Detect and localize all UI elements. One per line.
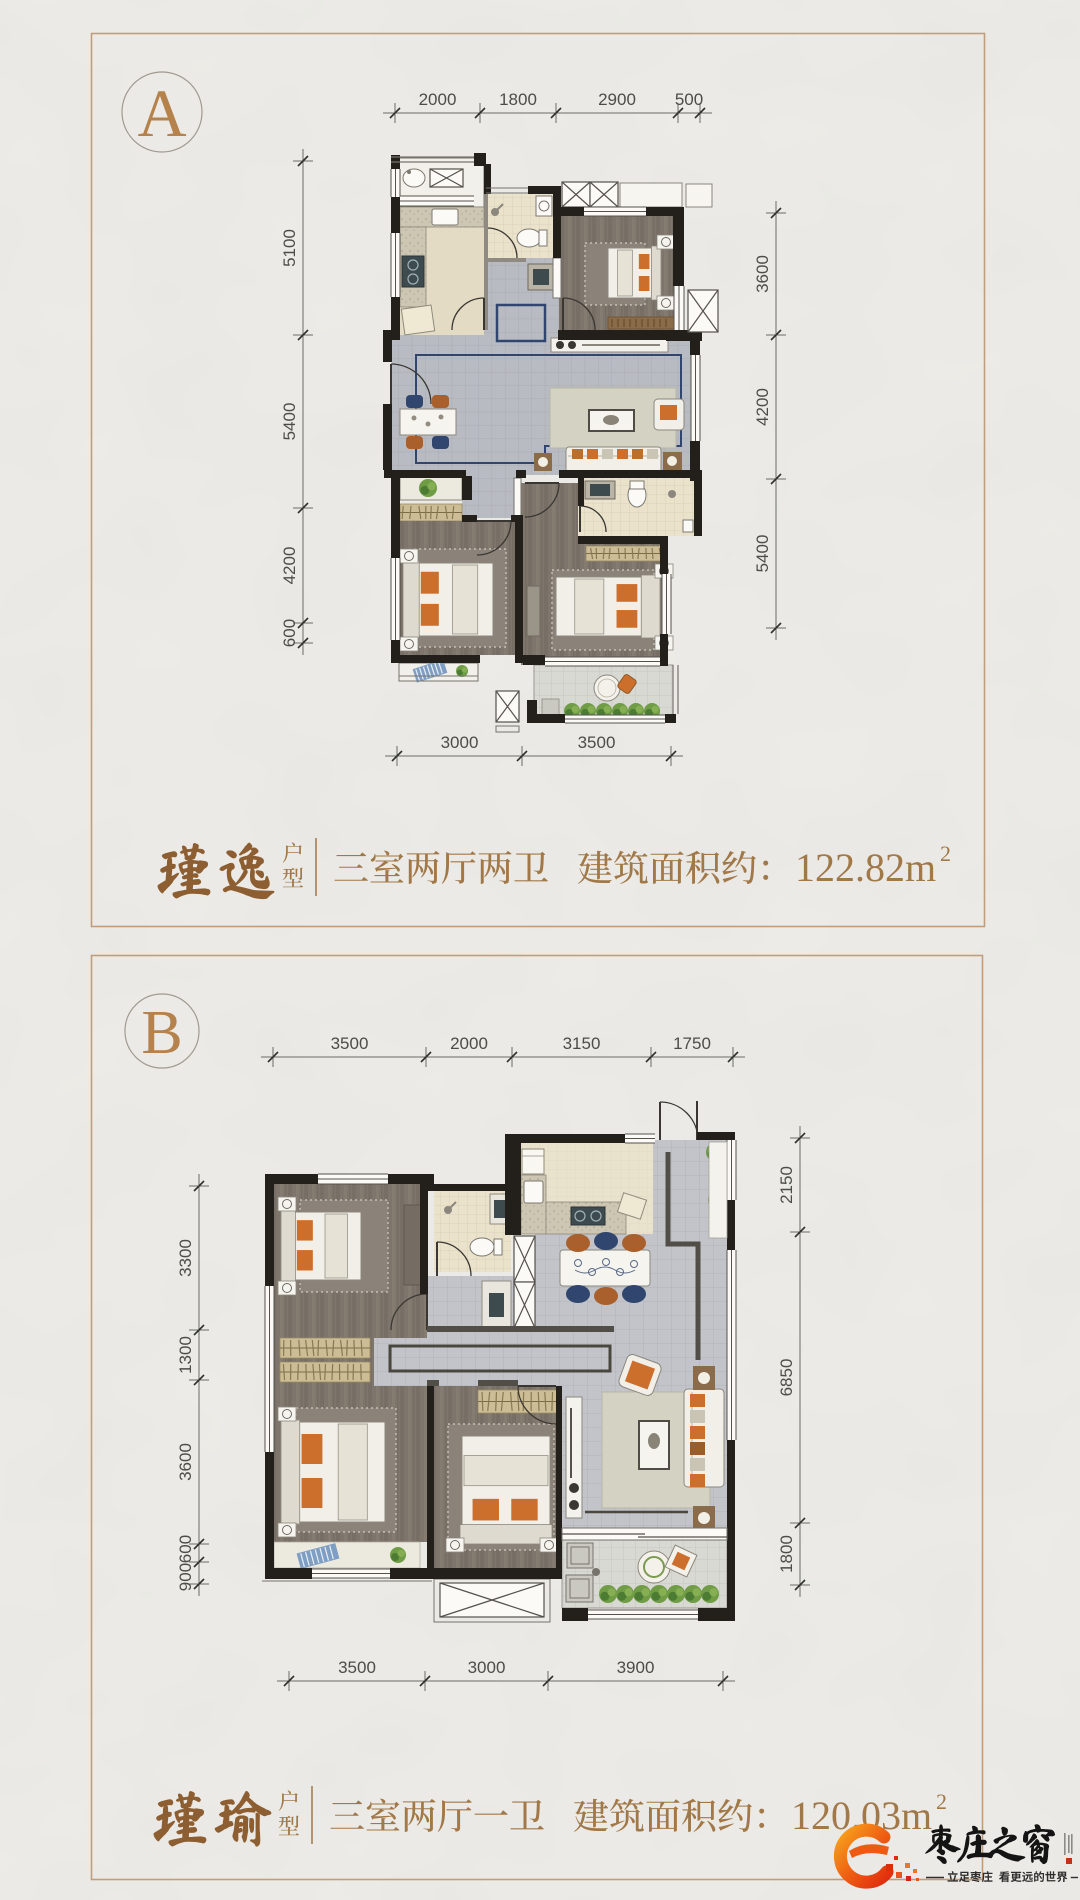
svg-text:A: A [137,75,186,151]
svg-text:3000: 3000 [468,1658,506,1677]
svg-text:1800: 1800 [777,1535,796,1573]
svg-text:1300: 1300 [176,1336,195,1374]
svg-text:4200: 4200 [280,547,299,585]
svg-text:2: 2 [940,841,951,866]
svg-text:2: 2 [936,1789,947,1814]
svg-text:1750: 1750 [673,1034,711,1053]
svg-text:3500: 3500 [338,1658,376,1677]
svg-text:5100: 5100 [280,229,299,267]
svg-text:2150: 2150 [777,1166,796,1204]
svg-text:B: B [141,999,182,1067]
svg-text:3500: 3500 [578,733,616,752]
svg-text:3600: 3600 [176,1443,195,1481]
svg-text:3000: 3000 [441,733,479,752]
svg-text:600: 600 [176,1535,195,1563]
svg-text:600: 600 [280,619,299,647]
svg-text:2000: 2000 [450,1034,488,1053]
svg-text:5400: 5400 [280,403,299,441]
svg-text:3900: 3900 [617,1658,655,1677]
svg-text:2000: 2000 [419,90,457,109]
svg-text:4200: 4200 [753,388,772,426]
svg-text:900: 900 [176,1563,195,1591]
svg-text:500: 500 [675,90,703,109]
svg-text:3300: 3300 [176,1239,195,1277]
svg-text:122.82m: 122.82m [795,845,936,890]
svg-text:6850: 6850 [777,1359,796,1397]
svg-text:3150: 3150 [563,1034,601,1053]
svg-text:2900: 2900 [598,90,636,109]
svg-text:1800: 1800 [499,90,537,109]
svg-text:3600: 3600 [753,255,772,293]
svg-text:5400: 5400 [753,535,772,573]
svg-text:3500: 3500 [331,1034,369,1053]
